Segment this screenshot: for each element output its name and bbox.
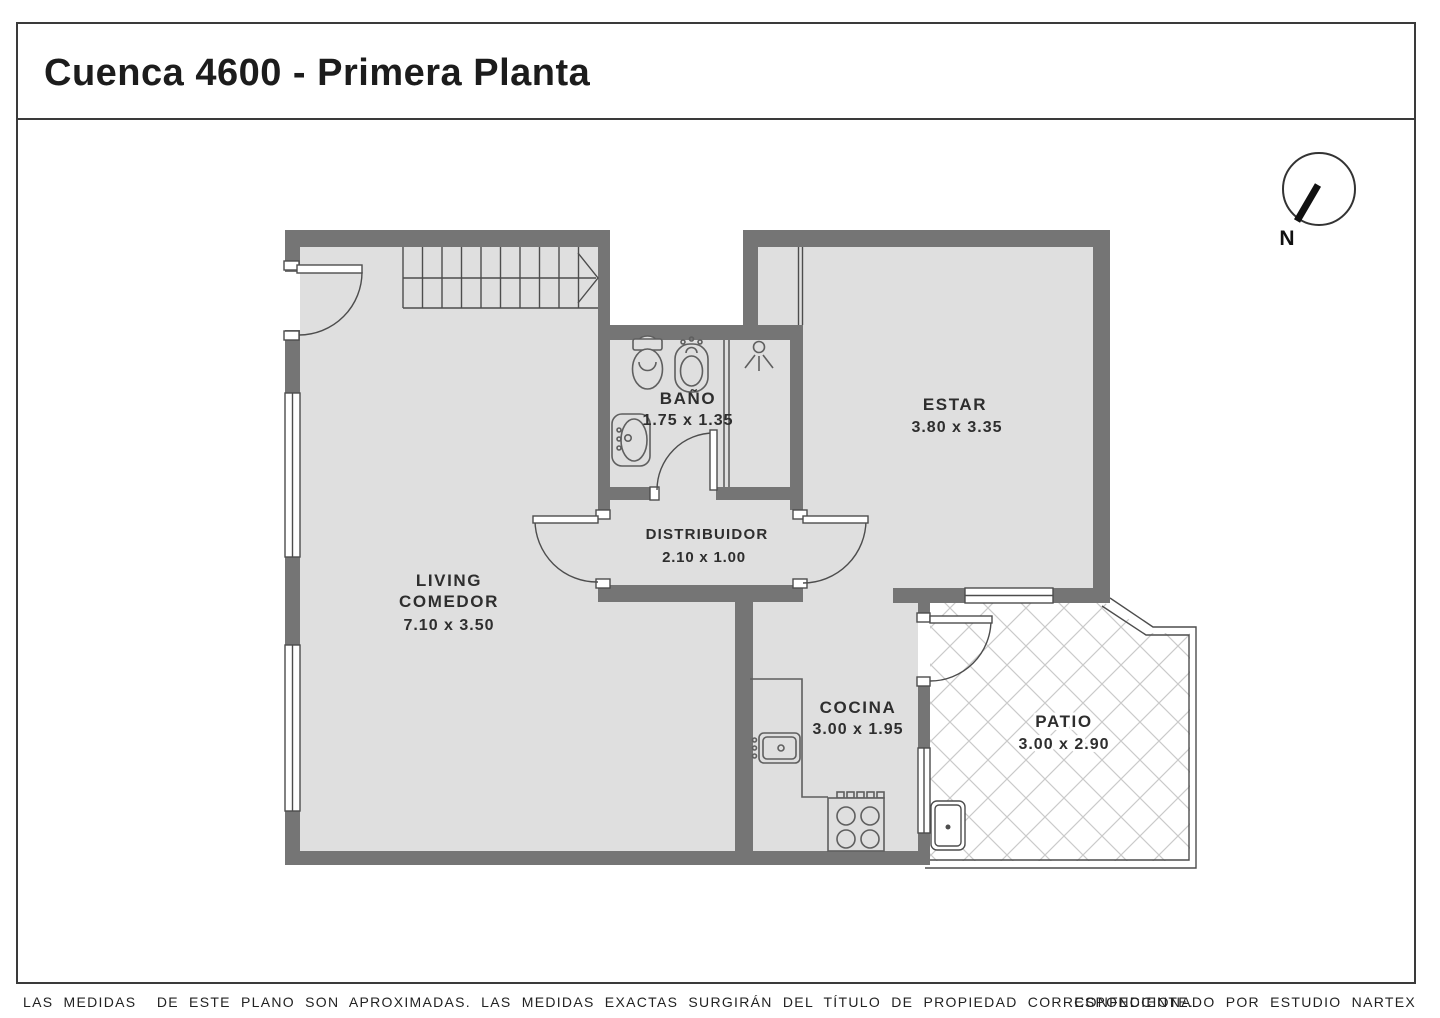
patio-label: PATIO bbox=[1035, 712, 1092, 731]
wall-segment bbox=[598, 247, 610, 510]
wall-segment bbox=[285, 557, 300, 645]
wall-segment bbox=[790, 325, 803, 510]
wall-segment bbox=[918, 685, 930, 748]
estar-floor bbox=[803, 247, 1093, 588]
wall-segment bbox=[285, 230, 610, 247]
living-label2: COMEDOR bbox=[399, 592, 499, 611]
living-label: LIVING bbox=[416, 571, 482, 590]
footer-credit: CONFECCIONADO POR ESTUDIO NARTEX bbox=[1074, 994, 1416, 1010]
living-floor-lower bbox=[598, 602, 735, 851]
living-door-gap bbox=[598, 519, 610, 579]
bathroom-door-gap bbox=[657, 487, 716, 500]
footer-disclaimer: LAS MEDIDAS DE ESTE PLANO SON APROXIMADA… bbox=[23, 994, 1194, 1010]
compass-needle-icon bbox=[1297, 185, 1318, 221]
bano-label: BAÑO bbox=[660, 388, 716, 408]
floorplan-page: Cuenca 4600 - Primera Planta N bbox=[0, 0, 1440, 1018]
kitchen-sink-icon bbox=[753, 733, 801, 763]
page-title: Cuenca 4600 - Primera Planta bbox=[44, 52, 591, 94]
stove-icon bbox=[828, 792, 884, 851]
compass-north-label: N bbox=[1279, 227, 1294, 250]
distribuidor-dims: 2.10 x 1.00 bbox=[662, 549, 746, 566]
laundry-sink-icon bbox=[931, 801, 965, 850]
cocina-dims: 3.00 x 1.95 bbox=[812, 721, 903, 738]
wall-segment bbox=[598, 487, 657, 500]
wall-segment bbox=[1093, 230, 1110, 603]
wall-segment bbox=[285, 851, 930, 865]
wall-segment bbox=[918, 833, 930, 851]
wall-segment bbox=[598, 325, 803, 340]
estar-label: ESTAR bbox=[923, 395, 987, 414]
estar-door-gap bbox=[790, 519, 803, 579]
living-dims: 7.10 x 3.50 bbox=[403, 617, 494, 634]
wall-segment bbox=[735, 602, 753, 851]
wall-segment bbox=[598, 585, 803, 602]
window bbox=[965, 588, 1053, 603]
wall-segment bbox=[743, 230, 1110, 247]
compass-icon: N bbox=[1279, 153, 1355, 250]
wall-segment bbox=[743, 247, 758, 325]
window bbox=[285, 645, 300, 811]
estar-cocina-passage bbox=[803, 585, 893, 603]
bano-dims: 1.75 x 1.35 bbox=[642, 412, 733, 429]
cocina-label: COCINA bbox=[820, 698, 897, 717]
toilet-icon bbox=[633, 336, 663, 389]
patio-dims: 3.00 x 2.90 bbox=[1018, 736, 1109, 753]
window bbox=[285, 393, 300, 557]
estar-dims: 3.80 x 3.35 bbox=[911, 419, 1002, 436]
window bbox=[918, 748, 930, 833]
distribuidor-label: DISTRIBUIDOR bbox=[646, 526, 769, 543]
living-floor bbox=[300, 247, 598, 851]
wall-segment bbox=[716, 487, 803, 500]
duct-strip-floor bbox=[758, 247, 803, 325]
floorplan-svg: Cuenca 4600 - Primera Planta N bbox=[0, 0, 1440, 1018]
patio-hatch bbox=[930, 603, 1190, 861]
footer: LAS MEDIDAS DE ESTE PLANO SON APROXIMADA… bbox=[23, 994, 1416, 1010]
